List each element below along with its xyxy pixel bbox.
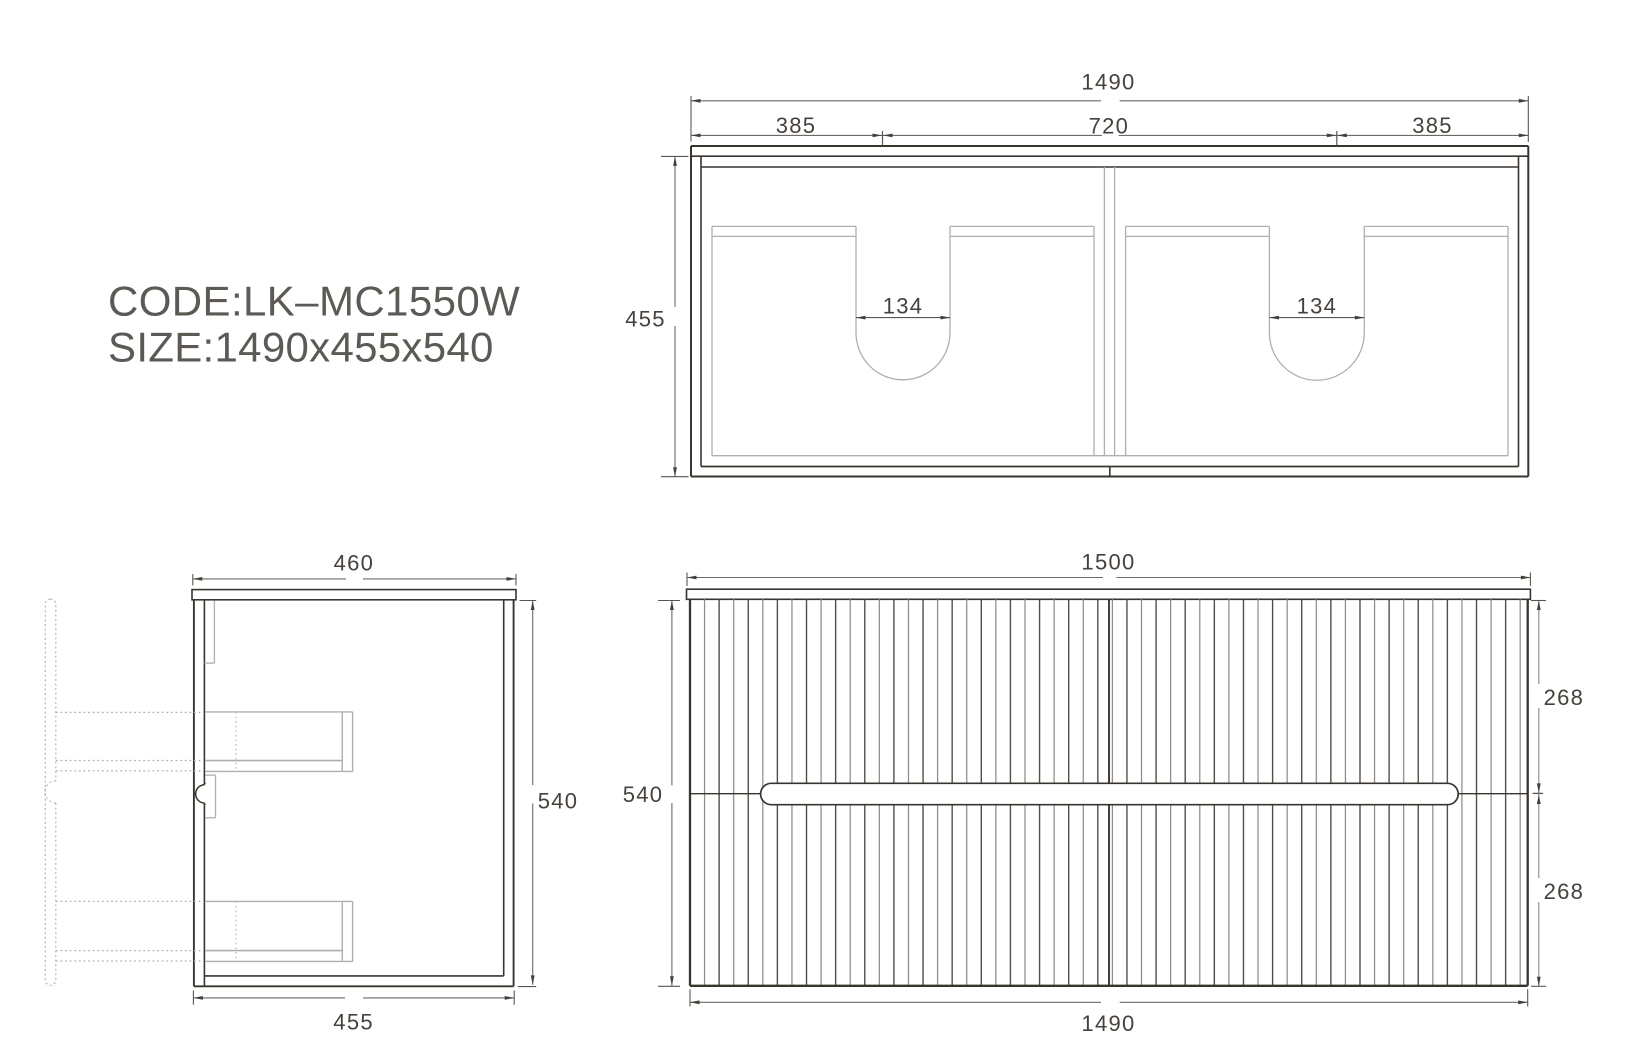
svg-text:540: 540: [623, 782, 664, 807]
svg-text:134: 134: [883, 294, 924, 319]
svg-text:SIZE:1490x455x540: SIZE:1490x455x540: [108, 323, 494, 370]
svg-text:268: 268: [1544, 879, 1585, 904]
svg-text:1500: 1500: [1081, 549, 1135, 574]
svg-text:1490: 1490: [1081, 70, 1135, 95]
svg-text:385: 385: [776, 113, 817, 138]
svg-text:455: 455: [625, 307, 666, 332]
svg-text:268: 268: [1544, 685, 1585, 710]
svg-text:134: 134: [1297, 294, 1338, 319]
svg-text:540: 540: [538, 789, 579, 814]
svg-text:455: 455: [333, 1009, 374, 1034]
svg-text:460: 460: [334, 551, 375, 576]
svg-text:CODE:LK–MC1550W: CODE:LK–MC1550W: [108, 278, 520, 325]
svg-text:1490: 1490: [1081, 1011, 1135, 1036]
svg-text:385: 385: [1412, 113, 1453, 138]
svg-text:720: 720: [1089, 113, 1130, 138]
